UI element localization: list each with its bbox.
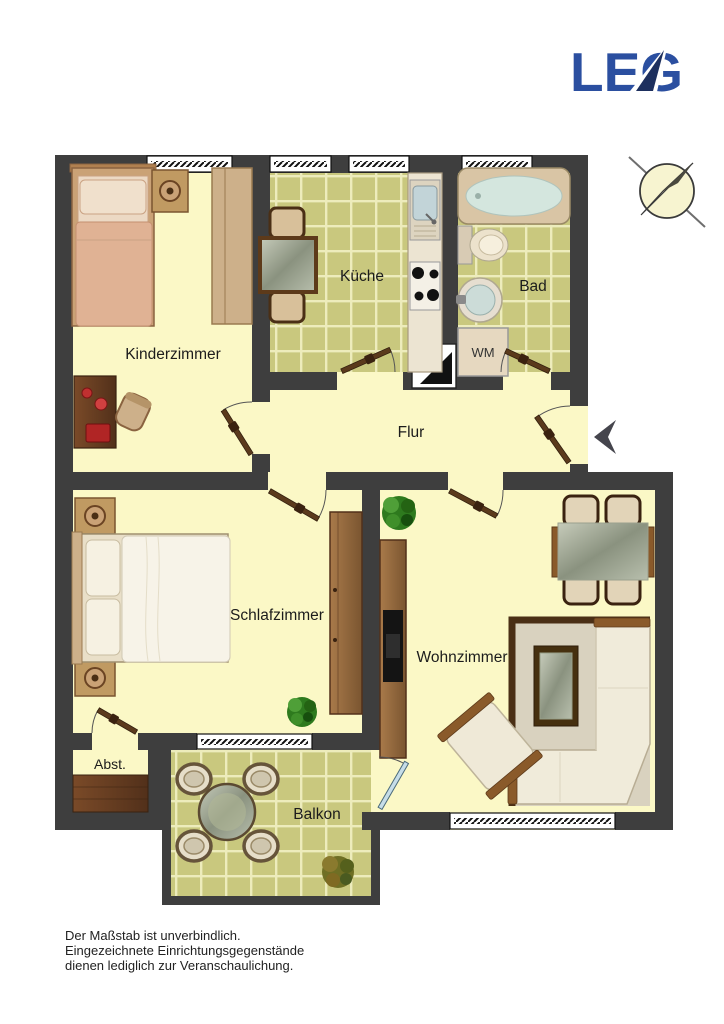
kitchen-counter [408, 173, 442, 372]
window [270, 156, 331, 172]
room-label-kinderzimmer: Kinderzimmer [125, 346, 221, 363]
nightstand [75, 660, 115, 696]
balcony-table [199, 784, 255, 840]
tv-sideboard [380, 540, 406, 758]
storage-shelf [73, 775, 148, 812]
compass-icon [629, 157, 705, 227]
floorplan-page: LEG [0, 0, 724, 1024]
stove [410, 262, 440, 310]
washing-machine-label: WM [471, 345, 494, 360]
plant [322, 856, 354, 888]
room-label-flur: Flur [398, 424, 425, 441]
window [197, 734, 312, 749]
room-label-balkon: Balkon [293, 806, 340, 823]
bathtub [458, 168, 570, 224]
double-bed [72, 532, 230, 664]
kitchen-table [260, 238, 316, 292]
disclaimer-line-1: Der Maßstab ist unverbindlich. [65, 928, 241, 943]
sink [410, 180, 440, 240]
nightstand [75, 498, 115, 534]
toilet [458, 226, 508, 264]
nightstand [152, 170, 188, 212]
wardrobe [330, 512, 362, 714]
room-label-kueche: Küche [340, 268, 384, 285]
desk [74, 376, 116, 448]
plant [382, 496, 416, 530]
plant [287, 697, 317, 727]
room-label-abstellraum: Abst. [94, 756, 126, 772]
room-label-schlafzimmer: Schlafzimmer [230, 607, 324, 624]
room-label-wohnzimmer: Wohnzimmer [416, 649, 507, 666]
window [349, 156, 409, 172]
single-bed [70, 164, 156, 326]
dining-table [552, 523, 654, 580]
wardrobe [212, 168, 252, 324]
disclaimer-text: Der Maßstab ist unverbindlich. Eingezeic… [65, 928, 304, 973]
washing-machine: WM [458, 328, 508, 376]
room-label-bad: Bad [519, 278, 547, 295]
entrance-arrow-icon [594, 420, 616, 454]
leg-logo: LEG [570, 41, 683, 103]
floorplan-canvas: LEG [0, 0, 724, 1024]
disclaimer-line-2: Eingezeichnete Einrichtungsgegenstände [65, 943, 304, 958]
coffee-table [534, 646, 578, 726]
disclaimer-line-3: dienen lediglich zur Veranschaulichung. [65, 958, 293, 973]
window [450, 813, 615, 829]
